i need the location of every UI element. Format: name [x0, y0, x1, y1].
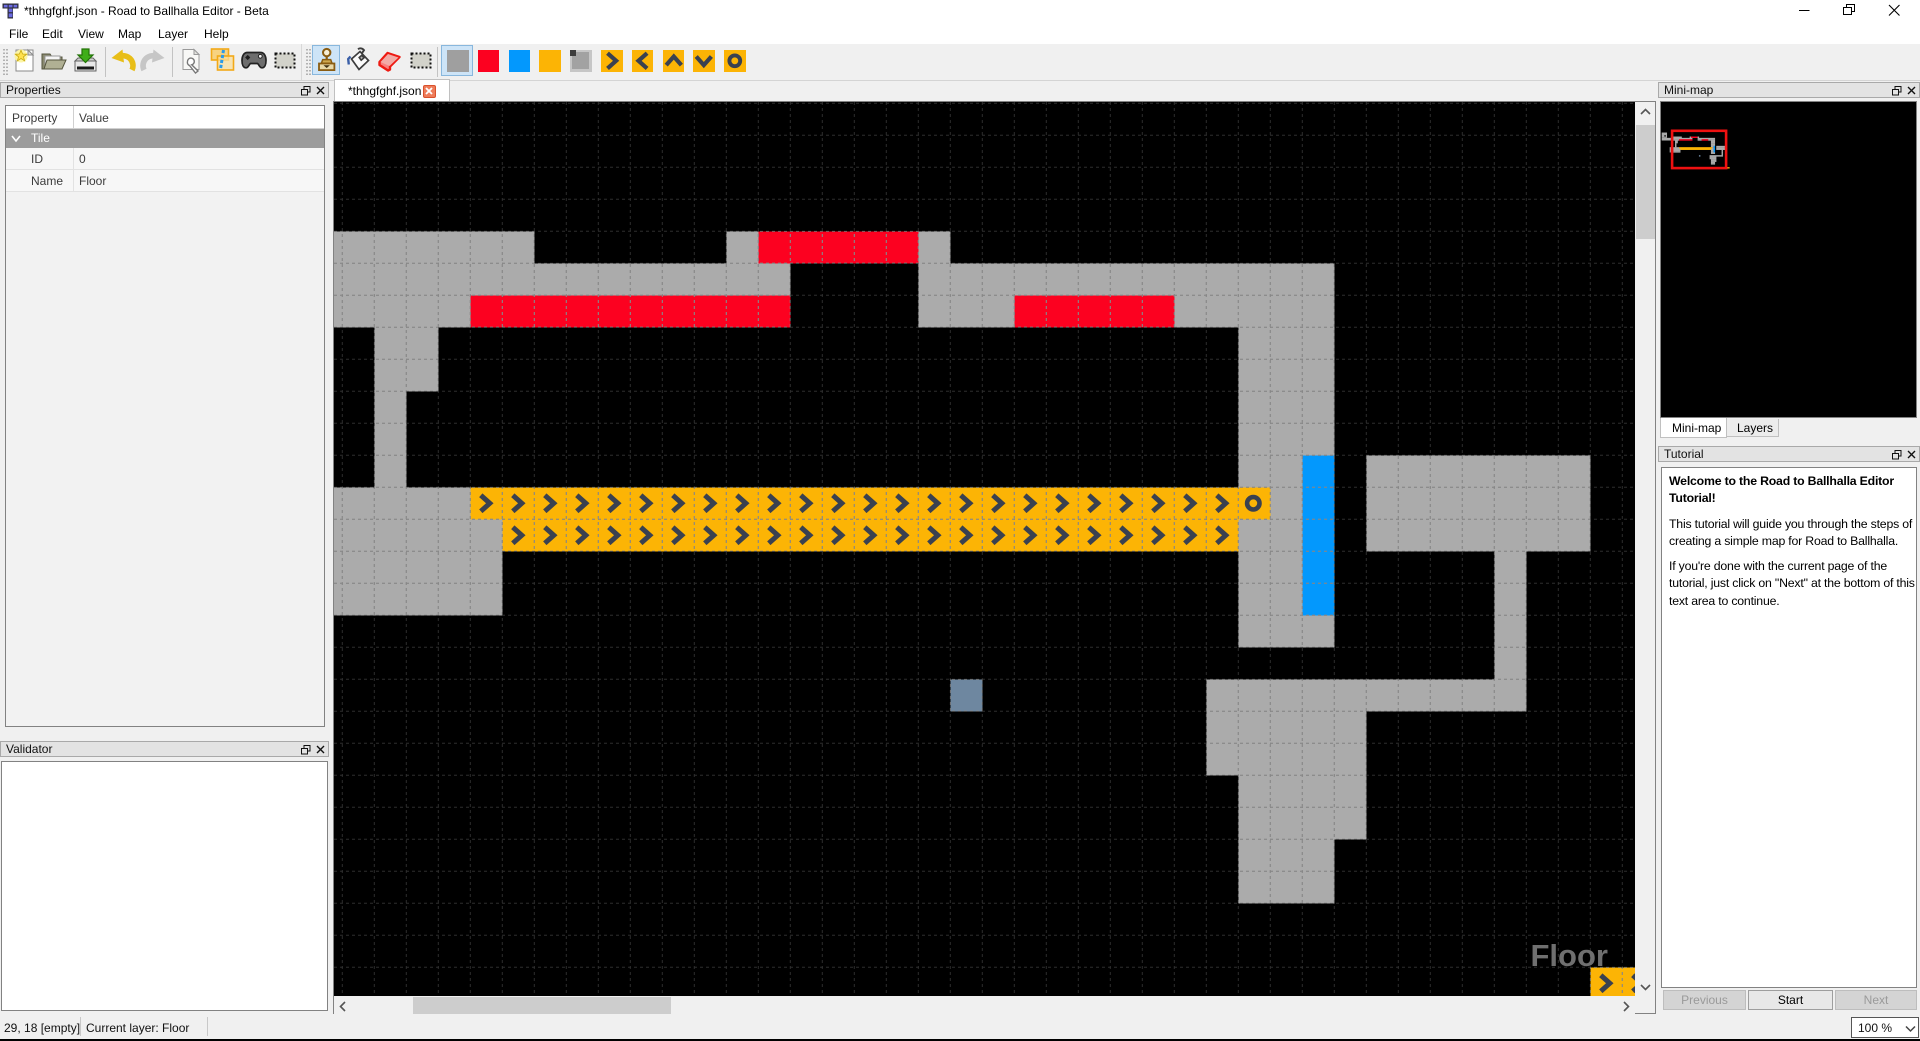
svg-text:Floor: Floor [1531, 938, 1609, 973]
